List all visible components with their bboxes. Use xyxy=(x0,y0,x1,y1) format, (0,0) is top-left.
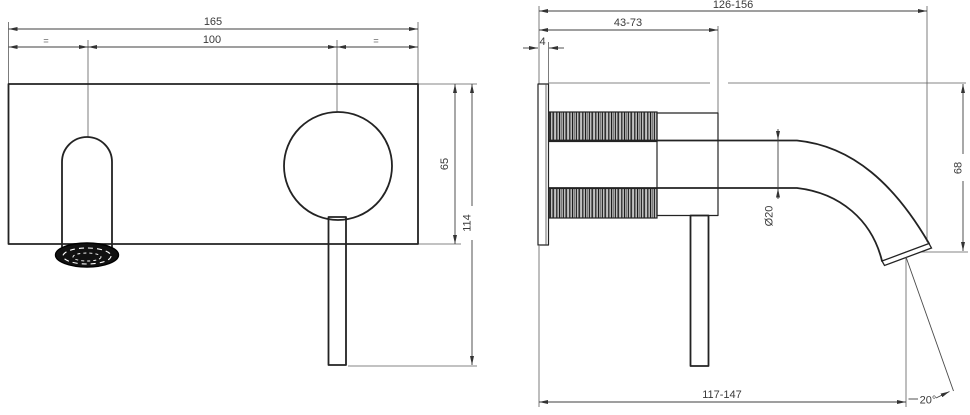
equal-mark-right: = xyxy=(373,36,378,46)
spout-front xyxy=(62,137,112,247)
knurl-band-bottom xyxy=(549,189,657,219)
dim-label-plate-width: 165 xyxy=(204,16,222,28)
lever-front xyxy=(329,217,347,365)
dim-label-spout-drop: 68 xyxy=(953,162,965,174)
angle-arrow xyxy=(936,392,950,399)
wall-plate-front xyxy=(9,84,419,244)
equal-mark-left: = xyxy=(43,36,48,46)
dim-label-plate-thickness: 4 xyxy=(539,36,545,48)
dim-label-spout-reach: 117-147 xyxy=(702,389,742,401)
faucet-technical-drawing: 165 100 = = 65 114 xyxy=(0,0,970,415)
dim-label-overall-depth: 126-156 xyxy=(713,0,753,11)
dim-label-outlet-angle: 20° xyxy=(920,395,937,407)
handle-circle xyxy=(284,112,392,220)
knurl-band-top xyxy=(549,112,657,142)
outlet-angle-line xyxy=(906,257,954,391)
dim-label-centers-distance: 100 xyxy=(203,34,221,46)
drawing-svg: 165 100 = = 65 114 xyxy=(0,0,970,415)
dim-label-spout-diameter: Ø20 xyxy=(764,206,776,227)
side-view: 126-156 43-73 4 Ø20 68 117-147 20° xyxy=(523,0,970,407)
front-view: 165 100 = = 65 114 xyxy=(9,16,479,366)
wall-plate-side xyxy=(538,84,549,245)
dim-label-overall-height: 114 xyxy=(462,214,474,232)
body-collar xyxy=(657,113,718,216)
dim-label-plate-height: 65 xyxy=(439,158,451,170)
lever-side xyxy=(691,216,709,367)
dim-label-wall-to-body: 43-73 xyxy=(614,17,642,29)
aerator xyxy=(56,243,119,267)
spout-outlet-face xyxy=(882,244,932,266)
